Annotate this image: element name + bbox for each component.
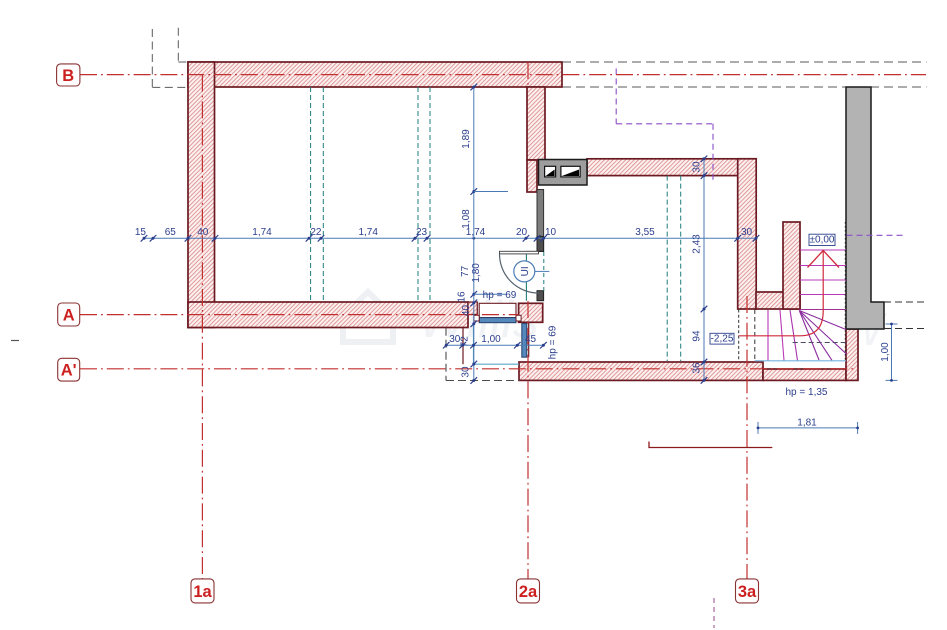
- svg-text:1,00: 1,00: [880, 342, 891, 362]
- svg-text:20: 20: [516, 227, 528, 238]
- svg-text:1,00: 1,00: [481, 334, 501, 345]
- svg-text:hp = 69: hp = 69: [548, 325, 559, 359]
- svg-text:77: 77: [460, 265, 471, 277]
- svg-text:1,89: 1,89: [461, 129, 472, 149]
- svg-text:hp = 69: hp = 69: [483, 290, 517, 301]
- svg-text:1a: 1a: [193, 583, 212, 601]
- svg-text:1,74: 1,74: [358, 227, 378, 238]
- svg-text:1,80: 1,80: [471, 263, 482, 283]
- svg-text:15: 15: [135, 227, 147, 238]
- svg-text:40: 40: [197, 227, 209, 238]
- svg-text:B: B: [62, 67, 74, 85]
- svg-text:-2,25: -2,25: [711, 334, 734, 345]
- svg-text:1,08: 1,08: [461, 209, 472, 229]
- svg-text:30: 30: [449, 334, 461, 345]
- svg-text:30: 30: [692, 161, 703, 173]
- svg-text:30: 30: [461, 366, 472, 378]
- svg-text:±0,00: ±0,00: [810, 235, 835, 246]
- svg-text:2,43: 2,43: [692, 234, 703, 254]
- svg-text:2a: 2a: [519, 583, 538, 601]
- svg-text:16: 16: [457, 291, 468, 303]
- svg-text:45: 45: [525, 334, 537, 345]
- svg-text:A': A': [61, 362, 77, 380]
- svg-text:65: 65: [165, 227, 177, 238]
- svg-text:36: 36: [692, 362, 703, 374]
- svg-text:A: A: [63, 307, 75, 325]
- svg-text:30: 30: [741, 227, 753, 238]
- svg-text:23: 23: [416, 227, 428, 238]
- svg-text:UI: UI: [520, 266, 531, 276]
- svg-text:3,55: 3,55: [635, 227, 655, 238]
- svg-text:10: 10: [545, 227, 557, 238]
- svg-text:1,81: 1,81: [797, 417, 817, 428]
- svg-text:40: 40: [461, 305, 472, 317]
- svg-text:1,74: 1,74: [252, 227, 272, 238]
- svg-text:94: 94: [692, 330, 703, 342]
- svg-text:3a: 3a: [738, 583, 757, 601]
- svg-text:hp = 1,35: hp = 1,35: [786, 387, 828, 398]
- svg-text:22: 22: [310, 227, 322, 238]
